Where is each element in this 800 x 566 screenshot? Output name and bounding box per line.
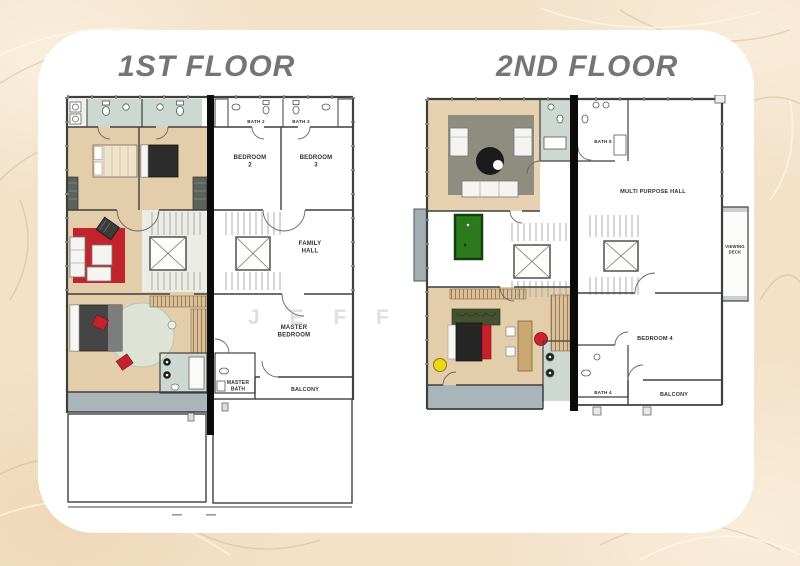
room-label-balcony-1f: BALCONY <box>291 387 319 393</box>
pool-table <box>455 215 482 259</box>
room-label-bedroom4: BEDROOM 4 <box>637 336 673 342</box>
room-label-balcony-2f: BALCONY <box>660 392 688 398</box>
room-label-bath2: BATH 2 <box>247 119 265 124</box>
lift-shaft-left-2f <box>514 245 550 278</box>
floor1-title: 1ST FLOOR <box>118 50 290 86</box>
page-root: 1ST FLOOR 2ND FLOOR <box>0 0 800 566</box>
floor2-title: 2ND FLOOR <box>496 50 676 86</box>
lift-shaft-left <box>150 237 186 270</box>
floor2-plan: BATH 5 MULTI PURPOSE HALL VIEWINGDECK BE… <box>410 95 760 435</box>
watermark-text: J E F F <box>248 306 438 330</box>
room-label-bath3: BATH 3 <box>292 119 310 124</box>
lounge-set <box>448 115 534 197</box>
lift-shaft-right <box>236 237 270 270</box>
room-label-master-bath: MASTERBATH <box>227 380 249 392</box>
room-label-bath5: BATH 5 <box>594 139 612 144</box>
room-label-bedroom3: BEDROOM3 <box>300 155 333 169</box>
room-label-multi-purpose-hall: MULTI PURPOSE HALL <box>620 189 686 195</box>
room-label-bedroom2: BEDROOM2 <box>234 155 267 169</box>
room-label-family-hall: FAMILYHALL <box>299 241 322 255</box>
room-label-bath4: BATH 4 <box>594 390 612 395</box>
bed-furniture-right <box>141 145 178 177</box>
bed-furniture-left <box>93 145 137 177</box>
party-wall-floor2 <box>570 95 578 411</box>
party-wall-floor1 <box>207 95 214 435</box>
lift-shaft-right-2f <box>604 241 638 271</box>
